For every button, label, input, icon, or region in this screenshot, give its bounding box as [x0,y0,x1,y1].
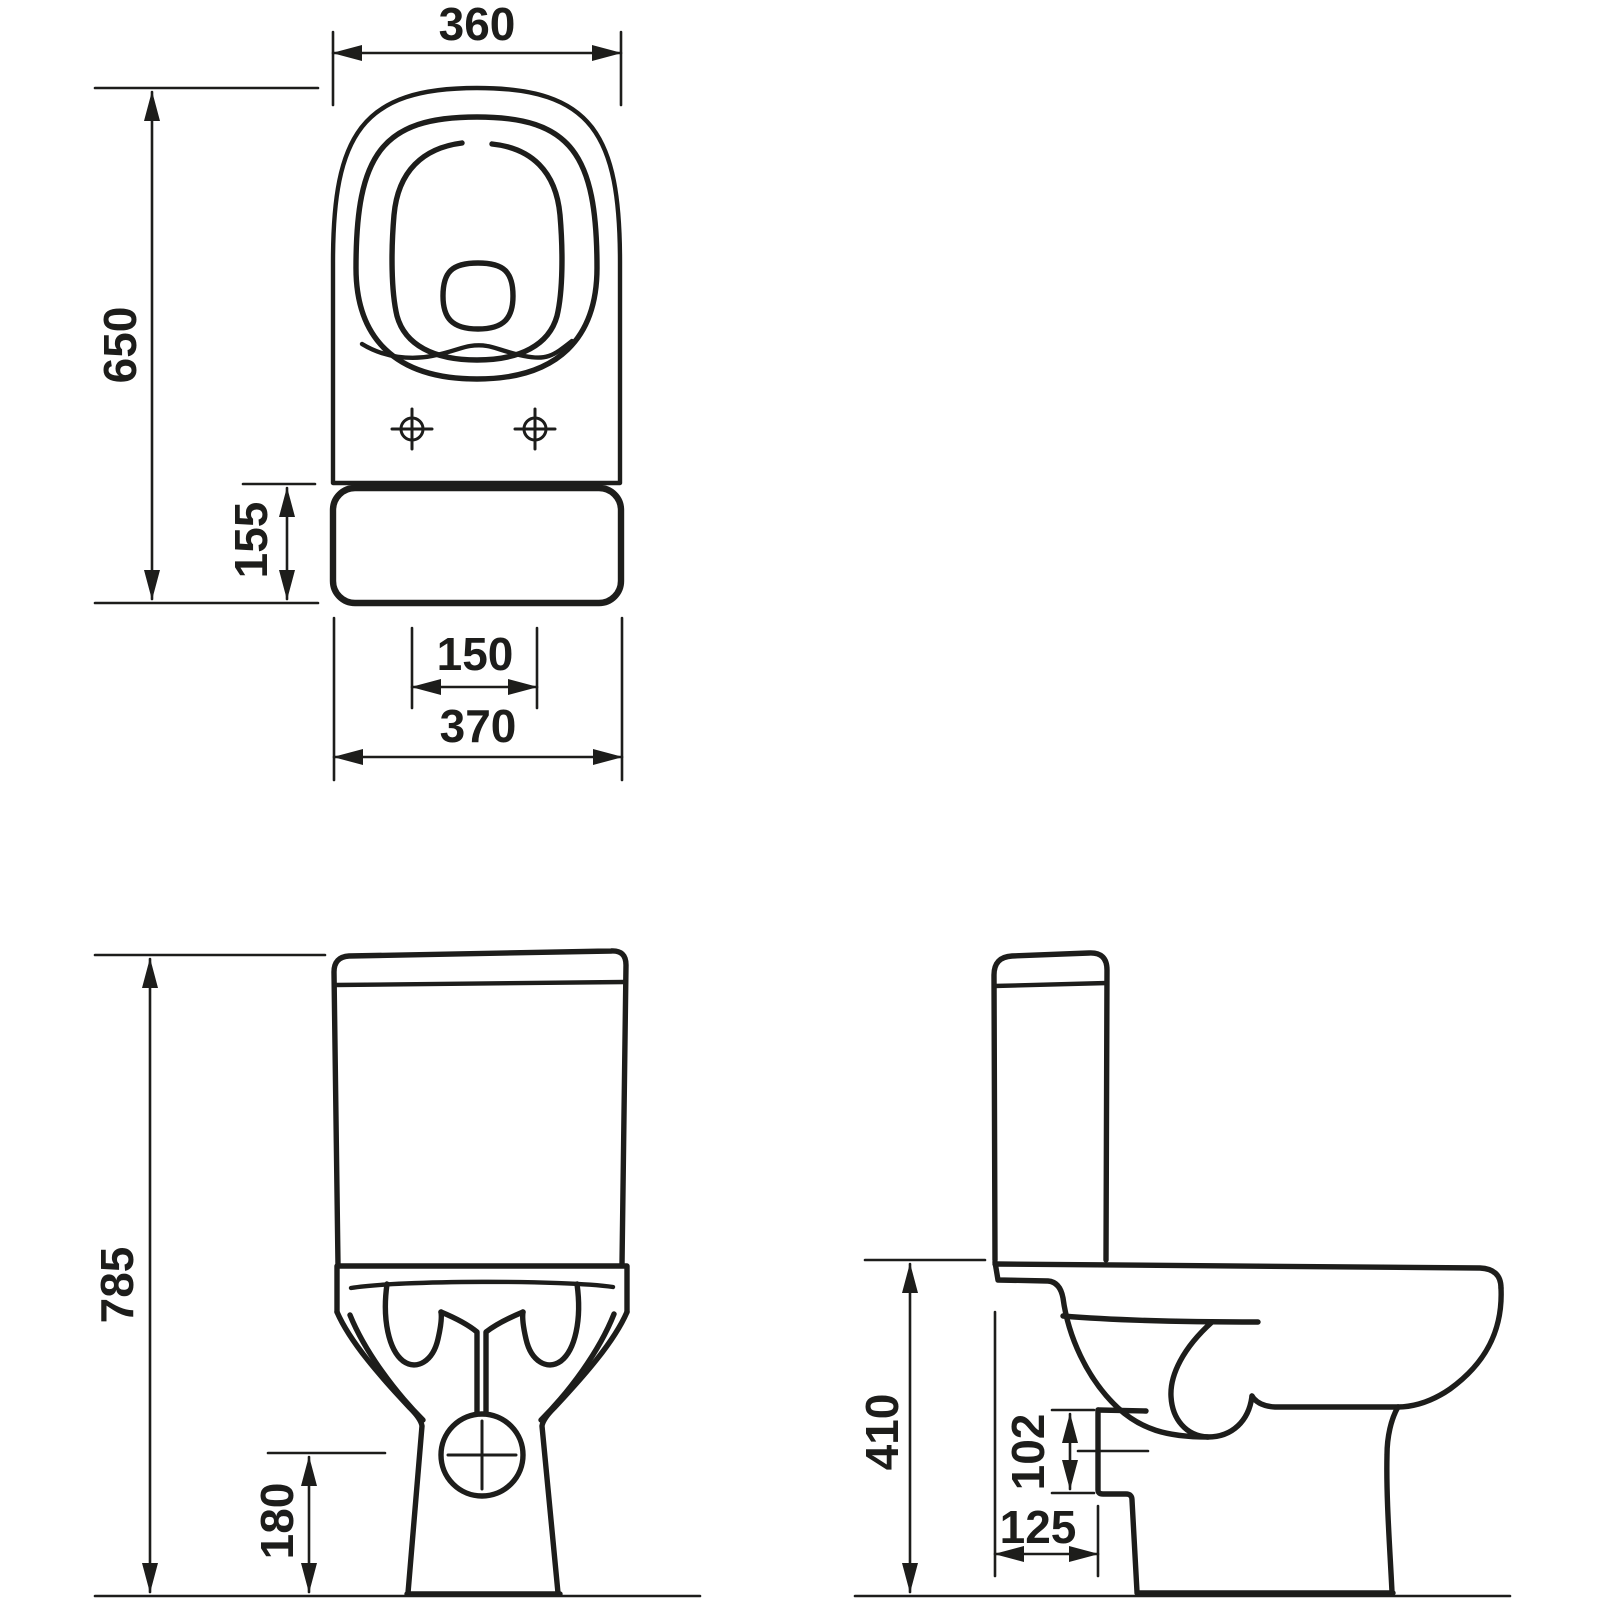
technical-drawing: 360 650 155 150 370 [0,0,1600,1600]
dim-label-155: 155 [225,502,277,579]
side-seat-top [995,1264,1501,1288]
top-view-body-outline [333,88,620,483]
front-funnel-right [486,1312,523,1413]
dim-label-360: 360 [439,0,516,50]
dim-label-650: 650 [94,307,146,384]
dim-label-785: 785 [91,1247,143,1324]
dim-bowl-height: 410 [856,1260,985,1592]
side-cistern-lid-line [994,983,1107,986]
drawing-page: 360 650 155 150 370 [0,0,1600,1600]
side-view: 410 102 125 [855,953,1510,1596]
dim-fixing-hole-spacing: 150 [412,628,537,708]
dim-tank-section-depth: 155 [225,484,315,599]
dim-label-180: 180 [251,1483,303,1560]
side-bowl-right-silhouette [1398,1288,1501,1407]
dim-label-125: 125 [1000,1501,1077,1553]
top-view-drain-hole [443,263,513,329]
front-bowl-right-silhouette [542,1312,627,1593]
fixing-hole-left-icon [392,409,432,449]
front-funnel-left [441,1312,477,1413]
top-view: 360 650 155 150 370 [94,0,622,780]
front-lobe-right [523,1284,579,1365]
front-cistern-lid-line [335,982,625,985]
side-pedestal-right [1387,1407,1398,1592]
side-outlet-step [1098,1410,1137,1592]
dim-total-depth: 650 [94,88,318,603]
side-trapway-bulge [1171,1322,1252,1437]
dim-label-150: 150 [437,628,514,680]
front-outlet-cross [448,1421,516,1489]
dim-label-370: 370 [440,700,517,752]
side-step-top-edge [1098,1410,1146,1411]
front-cistern-outline [334,951,626,1265]
dim-label-102: 102 [1002,1414,1054,1491]
front-rim-outline [337,1266,627,1312]
front-view: 785 180 [91,951,700,1596]
side-cistern-outline [994,953,1107,1260]
side-bowl-underside [1252,1396,1398,1407]
dim-outlet-center-height-front: 180 [251,1453,385,1592]
side-rim-bottom-line [1063,1316,1258,1322]
front-rim-front-edge [351,1282,613,1288]
top-view-tank-footprint [333,488,621,603]
fixing-hole-right-icon [515,409,555,449]
front-lobe-left [385,1284,441,1365]
dim-label-410: 410 [856,1394,908,1471]
